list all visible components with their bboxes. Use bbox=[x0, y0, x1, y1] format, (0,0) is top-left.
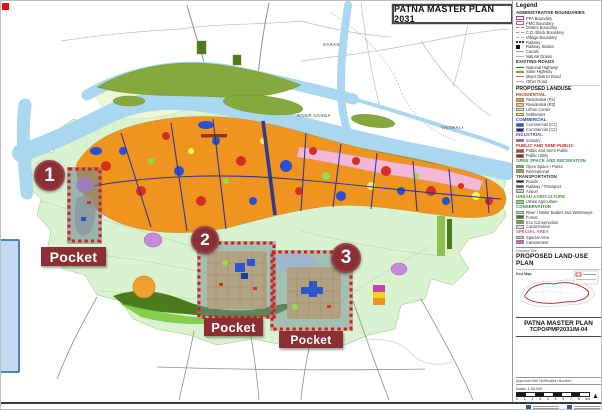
key-map-drawing bbox=[516, 270, 600, 314]
key-map: Key Map bbox=[516, 269, 601, 316]
plan-name: PATNA MASTER PLAN bbox=[516, 320, 601, 327]
fill-swatch bbox=[516, 220, 524, 224]
fill-swatch bbox=[516, 236, 524, 240]
industry-blob-west bbox=[144, 233, 162, 247]
legend-section: COMMERCIALCommercial (C1)Commercial (C2) bbox=[516, 118, 601, 132]
legend-item: Recreational bbox=[516, 169, 601, 174]
line-swatch bbox=[516, 71, 524, 72]
line-swatch bbox=[516, 51, 524, 52]
fill-swatch bbox=[516, 169, 524, 173]
scale-unit: km bbox=[585, 397, 590, 401]
pocket-2-marker: 2 bbox=[191, 226, 219, 254]
footer-logo-right bbox=[567, 405, 600, 410]
logo-icon bbox=[526, 405, 531, 410]
legend-title: Legend bbox=[516, 3, 601, 9]
slide-red-mark bbox=[2, 3, 9, 10]
sheet-footer bbox=[1, 404, 602, 410]
north-arrow-icon: ▲ bbox=[592, 393, 599, 400]
legend-section: INDUSTRIALIndustry bbox=[516, 133, 601, 143]
legend-section: RESIDENTIALResidential (R1)Residential (… bbox=[516, 93, 601, 117]
legend-sections: ADMINISTRATIVE BOUNDARIESPPA BoundaryPMC… bbox=[516, 10, 601, 245]
scale-tick: 0 bbox=[516, 397, 518, 401]
outline-swatch bbox=[516, 21, 524, 25]
footer-logo-left bbox=[526, 405, 559, 410]
fill-swatch bbox=[516, 149, 524, 153]
pocket-3-label: Pocket bbox=[279, 331, 343, 348]
scale-bar bbox=[516, 392, 590, 397]
legend-section: URBAN AGRICULTUREUrban Agriculture bbox=[516, 195, 601, 205]
scale-tick: 6 bbox=[562, 397, 564, 401]
scale-tick: 1 bbox=[524, 397, 526, 401]
pocket-2-label: Pocket bbox=[204, 318, 263, 336]
scale-label: Scale: 1:50,000 bbox=[516, 387, 601, 391]
plan-name-block: PATNA MASTER PLAN TCPO/PMP2031/M-04 bbox=[516, 317, 601, 337]
map-label-river-ganga: RIVER GANGA bbox=[297, 113, 331, 118]
fill-swatch bbox=[516, 103, 524, 107]
fill-swatch bbox=[516, 215, 524, 219]
legend-section: TRANSPORTATIONRoadsRailway / TransportAi… bbox=[516, 175, 601, 194]
legend-item: Airport bbox=[516, 189, 601, 194]
fill-swatch bbox=[516, 165, 524, 169]
legend-panel: Legend ADMINISTRATIVE BOUNDARIESPPA Boun… bbox=[512, 1, 602, 402]
land-use-map bbox=[1, 1, 512, 402]
scale-tick: 8 bbox=[578, 397, 580, 401]
scale-tick: 2 bbox=[531, 397, 533, 401]
square-swatch bbox=[516, 45, 520, 49]
patna-master-plan-sheet: PATNA MASTER PLAN 2031 SARANRIVER GANGAV… bbox=[0, 0, 602, 410]
legend-item-label: Other Road bbox=[526, 79, 547, 84]
dash-swatch bbox=[516, 32, 524, 33]
legend-section: PUBLIC AND SEMI-PUBLICPublic and Semi-Pu… bbox=[516, 144, 601, 158]
fill-swatch bbox=[516, 180, 524, 184]
fill-swatch bbox=[516, 225, 524, 229]
legend-section: ADMINISTRATIVE BOUNDARIESPPA BoundaryPMC… bbox=[516, 11, 601, 59]
pocket-3-marker: 3 bbox=[331, 243, 361, 273]
fill-swatch bbox=[516, 108, 524, 112]
rail-bar bbox=[201, 134, 227, 138]
legend-item-label: Cantonment bbox=[526, 240, 548, 245]
fill-swatch bbox=[516, 211, 524, 215]
line-swatch bbox=[516, 56, 524, 57]
rail-swatch bbox=[516, 41, 524, 43]
cutoff-blue-callout bbox=[0, 239, 20, 373]
fill-swatch bbox=[516, 128, 524, 132]
line-swatch bbox=[516, 76, 524, 77]
line-swatch bbox=[516, 81, 524, 82]
drawing-title: PROPOSED LAND-USE PLAN bbox=[516, 253, 601, 267]
scale-tick: 4 bbox=[547, 397, 549, 401]
fill-swatch bbox=[516, 200, 524, 204]
fill-swatch bbox=[516, 240, 524, 244]
town-blob-west bbox=[133, 276, 155, 298]
pocket-1-area bbox=[67, 167, 102, 244]
pocket-1-label: Pocket bbox=[41, 247, 106, 266]
fill-swatch bbox=[516, 123, 524, 127]
scale-tick: 5 bbox=[555, 397, 557, 401]
map-label-saran: SARAN bbox=[323, 42, 340, 47]
fill-swatch bbox=[516, 154, 524, 158]
plan-number: TCPO/PMP2031/M-04 bbox=[516, 327, 601, 333]
fill-swatch bbox=[516, 185, 524, 189]
scale-ticks: 012345678km bbox=[516, 397, 590, 401]
legend-item: Industry bbox=[516, 138, 601, 143]
legend-section: EXISTING ROADSNational HighwayState High… bbox=[516, 60, 601, 84]
mixed-blob-southeast bbox=[373, 285, 385, 305]
line-swatch bbox=[516, 67, 524, 68]
legend-section: SPECIAL AREASpecial AreaCantonment bbox=[516, 230, 601, 244]
legend-section: PROPOSED LANDUSE bbox=[516, 85, 601, 92]
outline-swatch bbox=[516, 16, 524, 20]
map-label-vaishali: VAISHALI bbox=[441, 125, 463, 130]
pocket-1-marker: 1 bbox=[34, 160, 65, 191]
fill-swatch bbox=[516, 98, 524, 102]
approval-scale-block: Approval vide Notification Number Scale:… bbox=[516, 377, 601, 402]
fill-swatch bbox=[516, 113, 524, 117]
drawing-title-block: Drawing Title PROPOSED LAND-USE PLAN bbox=[516, 247, 601, 267]
hatch-swatch bbox=[516, 189, 524, 193]
logo-icon bbox=[567, 405, 572, 410]
scale-tick: 3 bbox=[539, 397, 541, 401]
legend-section-header: PROPOSED LANDUSE bbox=[516, 85, 601, 92]
map-title-box: PATNA MASTER PLAN 2031 bbox=[392, 4, 513, 24]
legend-section: OPEN SPACE AND RECREATIONOpen Space / Pa… bbox=[516, 159, 601, 173]
key-map-label: Key Map bbox=[516, 272, 532, 276]
approval-label: Approval vide Notification Number bbox=[516, 379, 601, 385]
scale-tick: 7 bbox=[570, 397, 572, 401]
legend-item: Other Road bbox=[516, 79, 601, 84]
forest-column bbox=[447, 219, 452, 249]
dash-swatch bbox=[516, 37, 524, 38]
industry-blob-east bbox=[391, 263, 407, 275]
fill-swatch bbox=[516, 139, 524, 143]
legend-item: Cantonment bbox=[516, 240, 601, 245]
map-title: PATNA MASTER PLAN 2031 bbox=[394, 4, 511, 24]
legend-item-label: Recreational bbox=[526, 169, 549, 174]
dash-swatch bbox=[516, 27, 524, 28]
legend-section: CONSERVATIONRiver / Water Bodies and Wat… bbox=[516, 205, 601, 229]
green-column bbox=[437, 216, 445, 256]
legend-item: Settlement bbox=[516, 112, 601, 117]
